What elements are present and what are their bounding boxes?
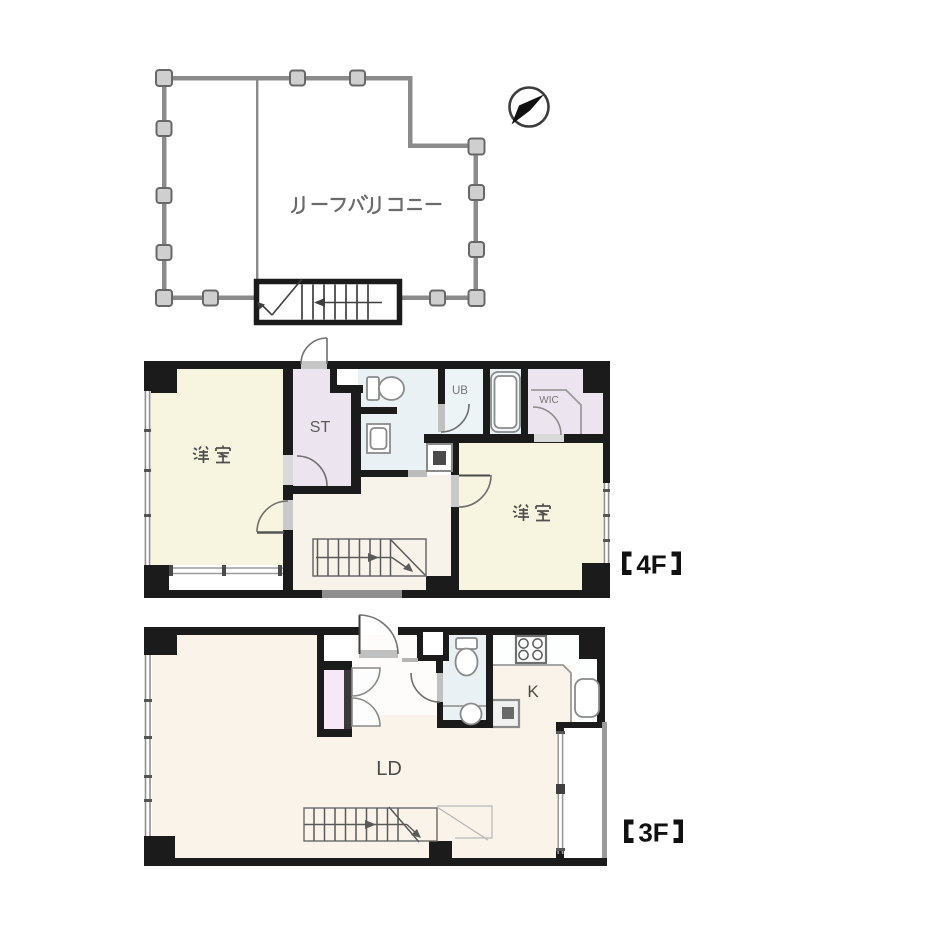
svg-text:ST: ST (310, 419, 331, 436)
svg-text:3F: 3F (638, 818, 668, 848)
svg-text:WIC: WIC (539, 395, 558, 406)
svg-text:4F: 4F (636, 550, 666, 580)
svg-text:LD: LD (376, 758, 402, 780)
svg-text:UB: UB (452, 385, 468, 397)
svg-text:K: K (527, 682, 539, 701)
